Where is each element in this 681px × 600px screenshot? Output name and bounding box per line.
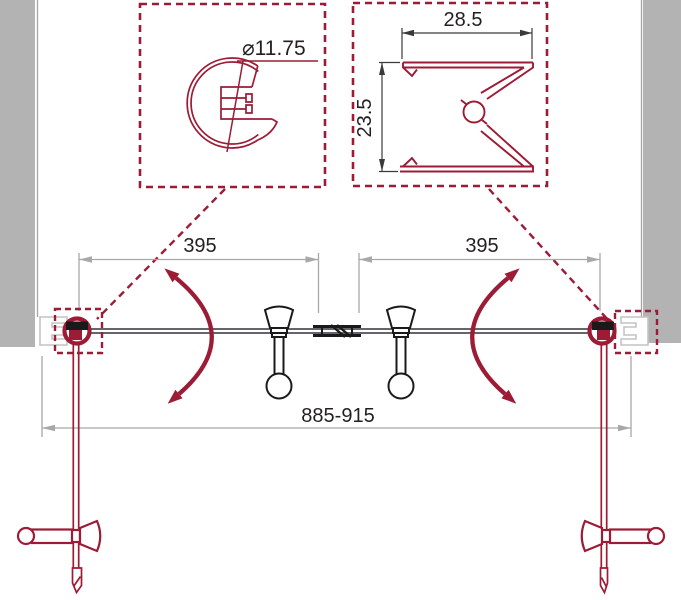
door-handle-right bbox=[387, 307, 415, 399]
handle-knob bbox=[582, 521, 602, 551]
depth-label: 23.5 bbox=[354, 99, 376, 138]
handle-stem bbox=[275, 337, 284, 374]
wall-profile-drawing bbox=[400, 63, 533, 172]
round-profile-drawing bbox=[187, 58, 277, 148]
overall-width-label: 885-915 bbox=[301, 405, 374, 427]
right-wall bbox=[643, 0, 681, 343]
handle-knob bbox=[80, 521, 100, 551]
width-label: 28.5 bbox=[444, 9, 483, 31]
walls bbox=[0, 0, 681, 347]
open-door-right bbox=[601, 344, 608, 593]
swing-arc-right bbox=[472, 268, 519, 403]
plan-view bbox=[18, 268, 664, 592]
diameter-leader bbox=[227, 61, 318, 152]
round-profile-detail-frame bbox=[140, 4, 325, 187]
width-dimension: 28.5 bbox=[402, 9, 532, 59]
handle-knob bbox=[265, 307, 293, 329]
detail-box-round-profile: ⌀11.75 bbox=[140, 4, 325, 187]
open-door-handle-right bbox=[582, 521, 664, 551]
swing-arc-left bbox=[164, 268, 211, 403]
open-door-handle-left bbox=[18, 521, 100, 551]
leader-line-right bbox=[489, 189, 609, 321]
left-wall bbox=[0, 0, 35, 347]
center-magnet-profile bbox=[313, 325, 361, 337]
handle-grip bbox=[18, 528, 34, 544]
handle-stem bbox=[397, 337, 406, 374]
diameter-label: ⌀11.75 bbox=[242, 37, 306, 60]
dimension-right-door: 395 bbox=[359, 235, 600, 313]
drawing-svg: ⌀11.75 28.5 bbox=[0, 0, 681, 600]
door-handle-left bbox=[265, 307, 293, 399]
door-bottom-profile bbox=[601, 568, 608, 593]
open-door-left bbox=[73, 344, 82, 593]
wall-mount-profile-right bbox=[621, 317, 648, 345]
handle-grip bbox=[648, 528, 664, 544]
handle-grip bbox=[267, 374, 292, 399]
handle-grip bbox=[389, 374, 414, 399]
right-door-width-label: 395 bbox=[465, 235, 498, 257]
leader-lines bbox=[97, 189, 609, 321]
handle-knob bbox=[387, 307, 415, 329]
technical-drawing-canvas: ⌀11.75 28.5 bbox=[0, 0, 681, 600]
depth-dimension: 23.5 bbox=[354, 63, 400, 172]
dimension-overall: 885-915 bbox=[42, 356, 631, 437]
detail-box-wall-profile: 28.5 23.5 bbox=[353, 3, 547, 186]
left-door-width-label: 395 bbox=[183, 235, 216, 257]
